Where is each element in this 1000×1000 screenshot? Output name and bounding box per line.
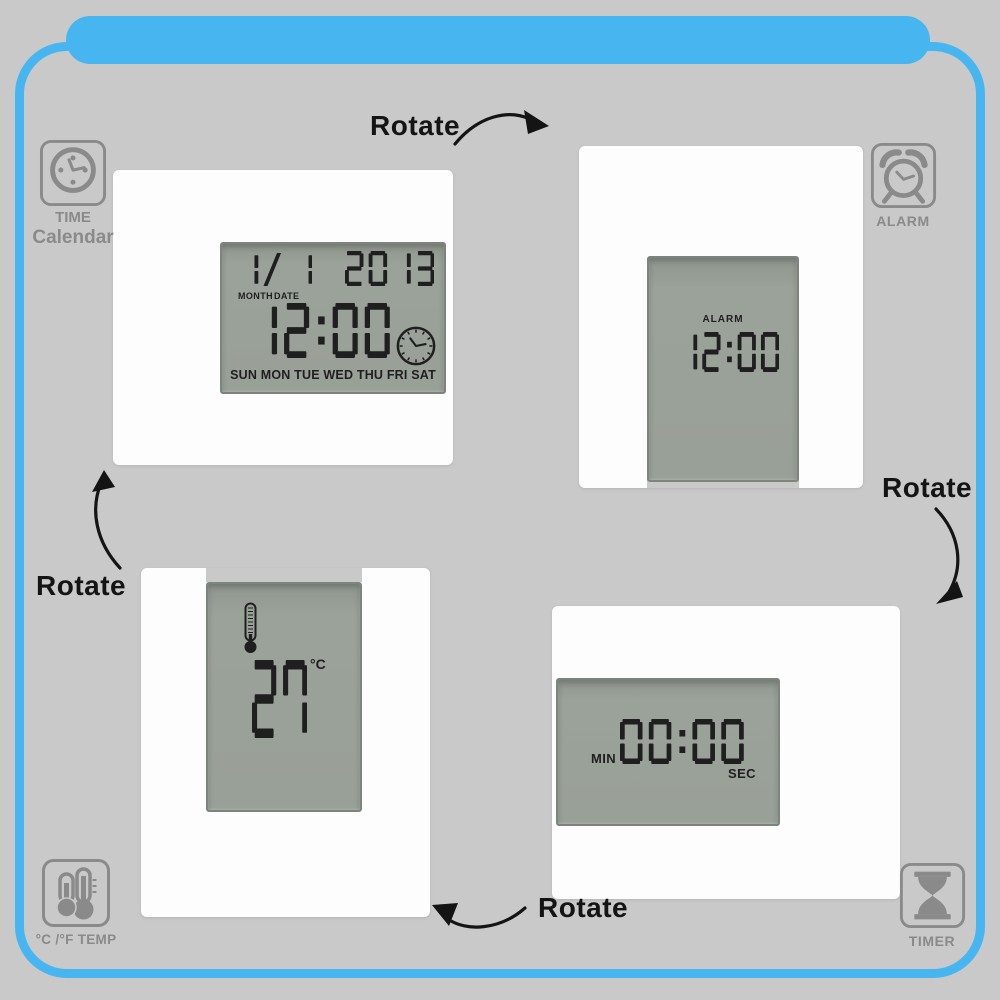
- temperature-unit: °C: [310, 656, 326, 672]
- lcd-timer: MIN SEC: [556, 678, 780, 826]
- rotate-label-bottom: Rotate: [538, 892, 628, 924]
- temperature-display: [252, 660, 307, 738]
- stand-notch-top: [206, 568, 362, 582]
- month-label: MONTH: [238, 291, 273, 301]
- lcd-time-calendar: MONTH DATE SUN MON TUE WED THU FRI SAT: [220, 242, 446, 394]
- rotate-arrow-bottom-icon: [428, 896, 528, 936]
- rotate-label-right: Rotate: [882, 472, 972, 504]
- mode-icon-time-calendar: TIME Calendar: [14, 139, 132, 248]
- date-label: DATE: [274, 291, 299, 301]
- rotate-arrow-top-icon: [452, 106, 552, 148]
- timer-display: [620, 719, 744, 764]
- alarm-time-display: [679, 332, 779, 372]
- dual-thermometer-icon: [41, 858, 111, 928]
- hourglass-icon: [899, 862, 966, 929]
- clock-timer: MIN SEC: [552, 606, 900, 899]
- alarm-clock-icon: [870, 142, 937, 209]
- mode-icon-temperature: °C /°F TEMP: [17, 858, 135, 947]
- month-day-display: [240, 253, 312, 286]
- product-diagram: MONTH DATE SUN MON TUE WED THU FRI SAT A…: [0, 0, 1000, 1000]
- alarm-mode-label: ALARM: [649, 314, 797, 325]
- thermometer-icon: [242, 602, 259, 654]
- time-display: [252, 303, 390, 358]
- lcd-temperature: °C: [206, 582, 362, 812]
- clock-time-calendar: MONTH DATE SUN MON TUE WED THU FRI SAT: [113, 170, 453, 465]
- rotate-arrow-right-icon: [918, 506, 973, 608]
- lcd-alarm: ALARM: [647, 256, 799, 482]
- rotate-label-top: Rotate: [370, 110, 460, 142]
- temperature-label: °C /°F TEMP: [36, 932, 117, 947]
- alarm-label: ALARM: [876, 214, 930, 230]
- timer-label: TIMER: [909, 934, 956, 950]
- timer-min-label: MIN: [591, 751, 616, 766]
- time-label: TIME: [55, 210, 91, 227]
- calendar-label: Calendar: [32, 227, 113, 248]
- analog-clock-icon: [395, 325, 437, 367]
- timer-sec-label: SEC: [728, 766, 756, 781]
- clock-alarm: ALARM: [579, 146, 863, 488]
- weekdays-row: SUN MON TUE WED THU FRI SAT: [222, 368, 444, 382]
- rotate-arrow-left-icon: [84, 470, 132, 572]
- clock-temperature: °C: [141, 568, 430, 917]
- mode-icon-timer: TIMER: [874, 862, 990, 950]
- year-display: [345, 251, 434, 286]
- clock-calendar-icon: [39, 139, 107, 207]
- mode-icon-alarm: ALARM: [845, 142, 961, 230]
- blue-top-bar: [66, 16, 930, 64]
- rotate-label-left: Rotate: [36, 570, 126, 602]
